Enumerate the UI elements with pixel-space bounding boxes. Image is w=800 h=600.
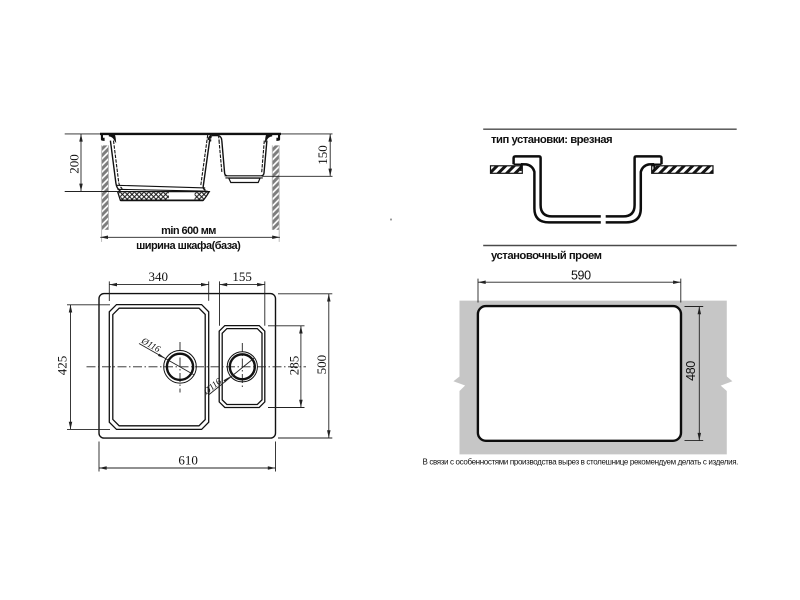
- svg-text:200: 200: [66, 154, 81, 174]
- svg-text:В связи с особенностями произв: В связи с особенностями производства выр…: [423, 458, 739, 467]
- svg-text:425: 425: [54, 356, 69, 376]
- svg-text:285: 285: [286, 356, 301, 376]
- svg-text:590: 590: [571, 268, 591, 282]
- svg-text:340: 340: [148, 269, 168, 284]
- svg-text:min 600 мм: min 600 мм: [161, 225, 216, 237]
- svg-text:Ø116: Ø116: [138, 336, 161, 355]
- svg-text:500: 500: [314, 355, 329, 375]
- svg-text:установочный проем: установочный проем: [491, 250, 602, 262]
- svg-text:тип установки: врезная: тип установки: врезная: [491, 134, 612, 146]
- svg-text:155: 155: [232, 269, 252, 284]
- svg-text:480: 480: [684, 361, 698, 381]
- svg-text:610: 610: [178, 453, 198, 468]
- svg-text:150: 150: [315, 145, 330, 165]
- svg-text:ширина шкафа(база): ширина шкафа(база): [136, 240, 241, 252]
